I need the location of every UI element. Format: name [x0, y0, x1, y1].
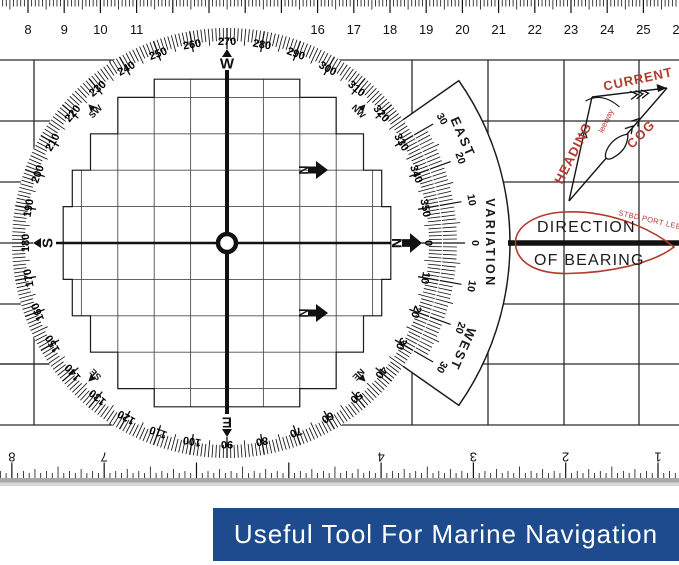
- north-arrow-shaft: [308, 167, 316, 174]
- north-arrow-shaft: [402, 239, 410, 247]
- cog-label: COG: [624, 117, 659, 152]
- compass-degree-label: 80: [255, 434, 269, 448]
- cardinal-letter-s: S: [40, 238, 57, 248]
- ruler-number: 18: [383, 22, 397, 37]
- ruler-number: 23: [564, 22, 578, 37]
- ruler-number: 16: [310, 22, 324, 37]
- compass-degree-label: 90: [221, 438, 233, 450]
- banner: Useful Tool For Marine Navigation: [213, 508, 679, 561]
- cardinal-letter-w: W: [220, 56, 235, 73]
- north-letter: N: [296, 308, 310, 317]
- ruler-number: 7: [101, 450, 108, 465]
- ruler-number: 20: [455, 22, 469, 37]
- ruler-number: 17: [347, 22, 361, 37]
- variation-label: VARIATION: [483, 198, 497, 287]
- ruler-number: 3: [470, 450, 477, 465]
- ruler-number: 21: [491, 22, 505, 37]
- compass-degree-label: 10: [418, 271, 432, 285]
- ruler-number: 1: [654, 450, 661, 465]
- ruler-number: 22: [528, 22, 542, 37]
- ruler-number: 8: [24, 22, 31, 37]
- ruler-number: 11: [130, 22, 144, 37]
- ruler-number: 24: [600, 22, 614, 37]
- bearing-tag-line1: DIRECTION: [537, 219, 636, 236]
- ruler-number: 19: [419, 22, 433, 37]
- north-letter: N: [296, 165, 310, 174]
- compass-degree-label: 270: [218, 36, 236, 48]
- ruler-number: 8: [8, 450, 15, 465]
- compass-degree-label: 0: [422, 240, 434, 246]
- banner-text: Useful Tool For Marine Navigation: [234, 519, 658, 550]
- plotter-photo: 8910111617181920212223242526 874321 3020…: [0, 0, 679, 565]
- ruler-edge: [0, 478, 679, 483]
- ruler-number: 10: [93, 22, 107, 37]
- center-ring: [218, 234, 236, 252]
- north-arrow-shaft: [308, 310, 316, 317]
- ruler-number: 2: [562, 450, 569, 465]
- variation-degree-label: 10: [464, 279, 478, 293]
- bearing-tag-line2: OF BEARING: [534, 252, 645, 269]
- vector-diagram: HEADING CURRENT COG leeway: [551, 64, 674, 201]
- ruler-number: 9: [61, 22, 68, 37]
- plotter-graphic: 8910111617181920212223242526 874321 3020…: [0, 0, 679, 565]
- heading-label: HEADING: [551, 120, 595, 186]
- variation-degree-label: 10: [464, 193, 478, 207]
- ruler-number: 25: [636, 22, 650, 37]
- variation-degree-label: 0: [469, 240, 481, 246]
- ruler-edge-shadow: [0, 483, 679, 487]
- ruler-number: 4: [377, 450, 384, 465]
- cardinal-letter-e: E: [222, 414, 232, 431]
- top-ruler-cm: 8910111617181920212223242526: [3, 0, 679, 37]
- compass-degree-label: 180: [20, 234, 32, 252]
- ruler-number: 26: [672, 22, 679, 37]
